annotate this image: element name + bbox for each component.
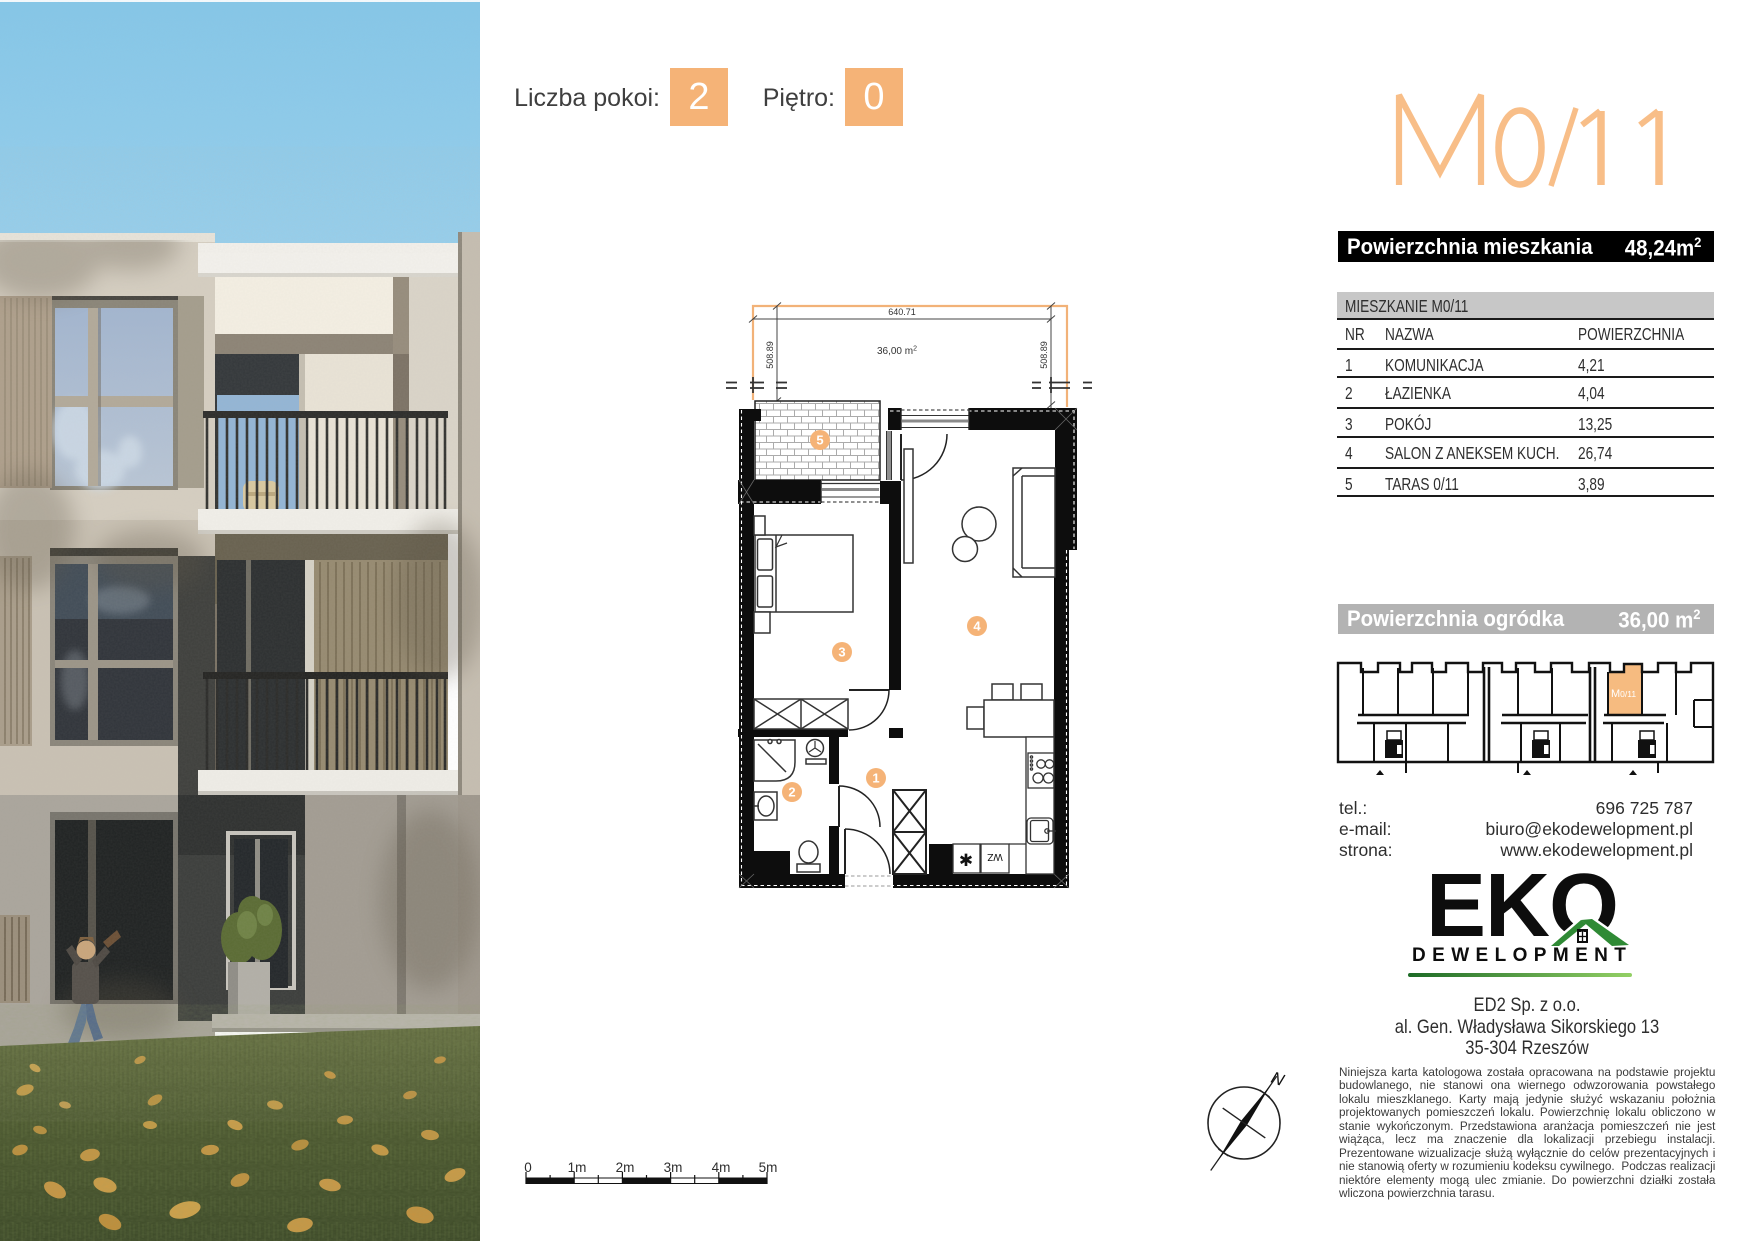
svg-text:2: 2 [788, 785, 795, 800]
svg-text:2m: 2m [616, 1160, 635, 1175]
svg-text:3: 3 [838, 645, 845, 660]
svg-text:5m: 5m [759, 1160, 778, 1175]
svg-text:4: 4 [973, 619, 981, 634]
svg-text:5: 5 [816, 433, 823, 448]
svg-text:508.89: 508.89 [765, 341, 775, 369]
svg-text:0: 0 [524, 1160, 532, 1175]
svg-text:36,00 m2: 36,00 m2 [877, 346, 917, 358]
svg-text:M0/11: M0/11 [1611, 688, 1636, 700]
svg-text:N: N [1269, 1068, 1288, 1090]
svg-text:3m: 3m [664, 1160, 683, 1175]
svg-text:1: 1 [872, 771, 879, 786]
svg-text:1m: 1m [568, 1160, 587, 1175]
svg-text:WZ: WZ [987, 851, 1003, 862]
svg-text:✱: ✱ [959, 851, 973, 870]
svg-text:640.71: 640.71 [888, 307, 916, 317]
svg-text:4m: 4m [712, 1160, 731, 1175]
svg-text:508.89: 508.89 [1039, 341, 1049, 369]
